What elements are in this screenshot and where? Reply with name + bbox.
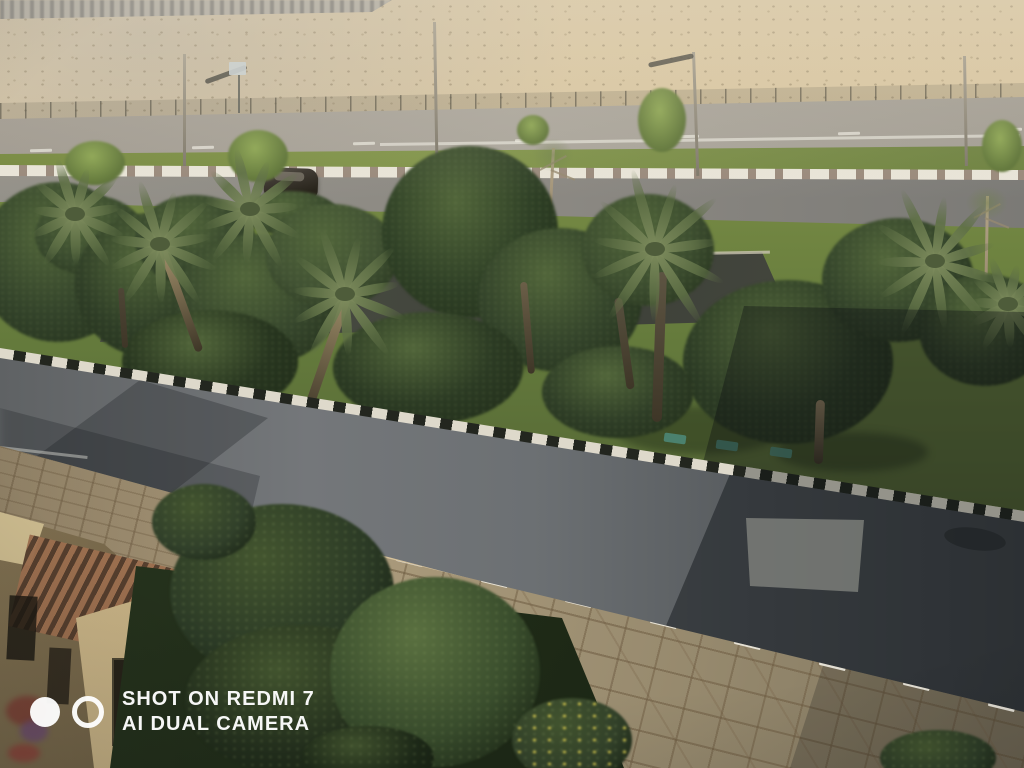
- bush: [152, 484, 256, 560]
- foreground-bushes-layer: [0, 0, 1024, 768]
- ring-circle-icon: [72, 696, 104, 728]
- filled-circle-icon: [30, 697, 60, 727]
- watermark-line1: SHOT ON REDMI 7: [122, 687, 315, 712]
- photo-canvas: SHOT ON REDMI 7 AI DUAL CAMERA: [0, 0, 1024, 768]
- bush: [880, 730, 996, 768]
- flowering-bush: [512, 698, 632, 768]
- camera-watermark: SHOT ON REDMI 7 AI DUAL CAMERA: [30, 688, 315, 736]
- watermark-line2: AI DUAL CAMERA: [122, 712, 315, 737]
- watermark-text: SHOT ON REDMI 7 AI DUAL CAMERA: [122, 687, 315, 737]
